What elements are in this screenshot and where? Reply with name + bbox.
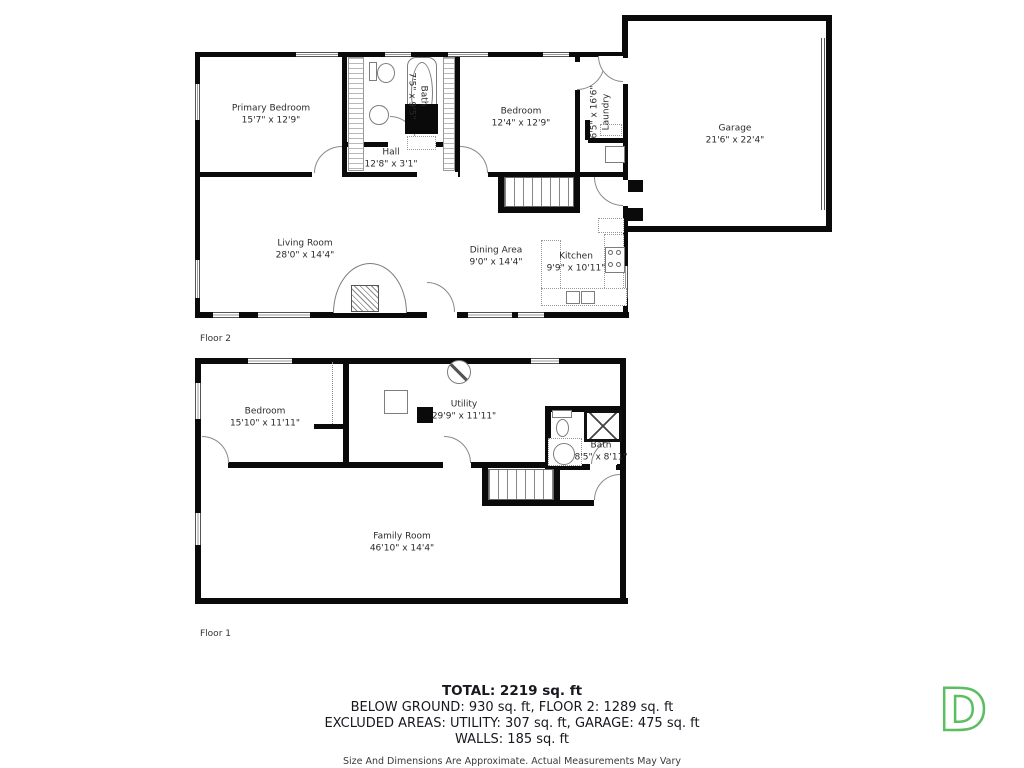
room-label-bath: Bath 8'5" x 8'11" xyxy=(575,440,628,463)
room-name: Living Room xyxy=(276,238,335,250)
window xyxy=(543,52,569,57)
window xyxy=(531,358,559,364)
closet xyxy=(443,57,455,171)
room-label-hall: Hall 12'8" x 3'1" xyxy=(365,147,418,170)
below-ground-area: BELOW GROUND: 930 sq. ft, FLOOR 2: 1289 … xyxy=(0,700,1024,715)
floorplan-canvas: Primary Bedroom 15'7" x 12'9" Bath 7'5" … xyxy=(0,0,1024,768)
walls-area: WALLS: 185 sq. ft xyxy=(0,732,1024,747)
window xyxy=(195,84,200,120)
window xyxy=(258,312,310,318)
room-dims: 29'9" x 11'11" xyxy=(432,411,496,423)
room-name: Bath xyxy=(575,440,628,452)
room-dims: 15'10" x 11'11" xyxy=(230,418,300,430)
room-dims: 28'0" x 14'4" xyxy=(276,250,335,262)
room-dims: 12'8" x 3'1" xyxy=(365,159,418,171)
wall xyxy=(314,424,349,429)
window xyxy=(248,358,292,364)
toilet xyxy=(556,419,569,437)
wall xyxy=(616,464,626,470)
wall xyxy=(622,15,832,21)
washer xyxy=(605,146,625,163)
wall xyxy=(195,598,628,604)
wall xyxy=(498,207,580,213)
room-dims: 9'0" x 14'4" xyxy=(470,257,523,269)
wall xyxy=(342,172,418,177)
staircase xyxy=(504,177,574,207)
wall xyxy=(575,52,580,62)
room-dims: 15'7" x 12'9" xyxy=(232,115,310,127)
burner xyxy=(608,250,613,255)
wall xyxy=(343,358,349,468)
wall xyxy=(574,172,580,213)
sink xyxy=(369,105,389,125)
room-label-utility: Utility 29'9" x 11'11" xyxy=(432,399,496,422)
room-label-kitchen: Kitchen 9'9" x 10'11" xyxy=(547,251,606,274)
room-name: Primary Bedroom xyxy=(232,103,310,115)
door-opening xyxy=(594,500,620,506)
room-label-garage: Garage 21'6" x 22'4" xyxy=(706,123,765,146)
room-name: Kitchen xyxy=(547,251,606,263)
window xyxy=(385,52,411,57)
electrical-panel xyxy=(447,360,471,384)
room-dims: 8'5" x 8'11" xyxy=(575,452,628,464)
toilet-tank xyxy=(369,62,377,81)
room-dims: 12'4" x 12'9" xyxy=(492,118,551,130)
closet-rod xyxy=(332,362,333,424)
door-arc xyxy=(444,436,471,463)
window xyxy=(195,383,201,419)
area-summary: TOTAL: 2219 sq. ft BELOW GROUND: 930 sq.… xyxy=(0,683,1024,767)
door-arc xyxy=(314,146,342,173)
wall xyxy=(622,226,832,232)
total-area: TOTAL: 2219 sq. ft xyxy=(0,683,1024,699)
window xyxy=(518,312,544,318)
wall xyxy=(575,90,580,177)
room-name: Bath xyxy=(417,72,429,119)
refrigerator xyxy=(598,218,624,233)
room-name: Garage xyxy=(706,123,765,135)
sink xyxy=(553,443,575,465)
kitchen-sink xyxy=(581,291,595,304)
room-label-living-room: Living Room 28'0" x 14'4" xyxy=(276,238,335,261)
door-arc xyxy=(598,56,623,82)
door-opening xyxy=(590,464,616,470)
door-opening xyxy=(427,312,457,318)
toilet xyxy=(377,63,395,83)
room-name: Hall xyxy=(365,147,418,159)
wall xyxy=(228,462,443,468)
burner xyxy=(616,250,621,255)
room-name: Bedroom xyxy=(492,106,551,118)
wall xyxy=(342,52,347,177)
wall xyxy=(826,15,832,232)
garage-door xyxy=(821,38,825,210)
floor-1-tag: Floor 1 xyxy=(200,629,231,639)
room-label-dining-area: Dining Area 9'0" x 14'4" xyxy=(470,245,523,268)
room-name: Family Room xyxy=(370,531,434,543)
room-dims: 21'6" x 22'4" xyxy=(706,135,765,147)
door-arc xyxy=(460,146,488,173)
entry-step xyxy=(628,208,643,221)
floor-2-tag: Floor 2 xyxy=(200,334,231,344)
burner xyxy=(616,262,621,267)
room-name: Utility xyxy=(432,399,496,411)
door-arc xyxy=(594,177,623,206)
window xyxy=(468,312,512,318)
closet xyxy=(348,57,364,171)
door-arc xyxy=(427,282,455,312)
room-label-bath: Bath 7'5" x 9'5" xyxy=(405,72,428,119)
door-opening xyxy=(417,172,458,177)
wall xyxy=(588,138,628,143)
excluded-areas: EXCLUDED AREAS: UTILITY: 307 sq. ft, GAR… xyxy=(0,716,1024,731)
room-dims: 46'10" x 14'4" xyxy=(370,543,434,555)
staircase xyxy=(488,469,554,500)
window xyxy=(296,52,338,57)
room-label-bedroom: Bedroom 12'4" x 12'9" xyxy=(492,106,551,129)
shower xyxy=(584,410,622,442)
room-label-family-room: Family Room 46'10" x 14'4" xyxy=(370,531,434,554)
room-name: Laundry xyxy=(601,86,613,139)
room-dims: 6'5" x 16'6" xyxy=(589,86,601,139)
window xyxy=(195,260,200,298)
room-dims: 7'5" x 9'5" xyxy=(405,72,417,119)
room-name: Dining Area xyxy=(470,245,523,257)
support-post xyxy=(417,407,433,423)
wall xyxy=(482,500,560,506)
room-label-bedroom: Bedroom 15'10" x 11'11" xyxy=(230,406,300,429)
fireplace xyxy=(351,285,379,312)
brand-logo: D xyxy=(930,678,996,744)
wall xyxy=(195,172,312,177)
door-arc xyxy=(202,436,229,463)
wall xyxy=(622,15,628,58)
wall xyxy=(620,358,626,604)
window xyxy=(213,312,239,318)
burner xyxy=(608,262,613,267)
entry-step xyxy=(628,180,643,192)
door-arc xyxy=(594,474,620,500)
room-label-primary-bedroom: Primary Bedroom 15'7" x 12'9" xyxy=(232,103,310,126)
disclaimer: Size And Dimensions Are Approximate. Act… xyxy=(0,756,1024,767)
room-label-laundry: 6'5" x 16'6" Laundry xyxy=(589,86,612,139)
brand-logo-letter: D xyxy=(939,678,987,744)
window xyxy=(195,513,201,545)
wall xyxy=(554,500,598,506)
room-name: Bedroom xyxy=(230,406,300,418)
kitchen-sink xyxy=(566,291,580,304)
toilet-tank xyxy=(552,410,572,418)
utility-box xyxy=(384,390,408,414)
room-dims: 9'9" x 10'11" xyxy=(547,263,606,275)
